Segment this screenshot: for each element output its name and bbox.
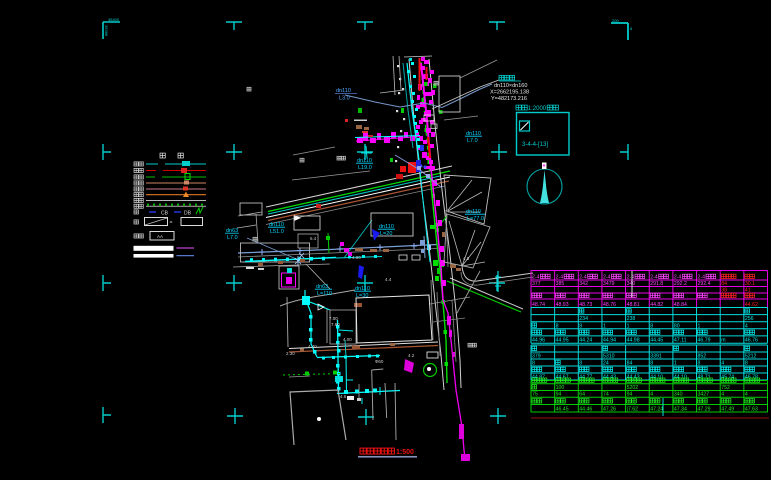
- svg-text:X=2662195.138: X=2662195.138: [490, 90, 529, 96]
- svg-text:L19.0: L19.0: [358, 165, 372, 171]
- svg-text:4.4: 4.4: [385, 277, 392, 282]
- svg-text:8: 8: [579, 361, 582, 367]
- svg-text:47.34: 47.34: [674, 407, 687, 413]
- svg-text:8: 8: [532, 361, 535, 367]
- svg-text:8: 8: [556, 323, 559, 329]
- svg-text:47.26: 47.26: [603, 407, 616, 413]
- svg-text:4.00: 4.00: [343, 337, 352, 342]
- svg-text:238: 238: [627, 316, 636, 322]
- svg-text:47.29: 47.29: [698, 407, 711, 413]
- svg-text:5310: 5310: [603, 354, 615, 360]
- svg-text:3479: 3479: [603, 281, 615, 287]
- svg-text:30.1: 30.1: [745, 281, 755, 287]
- svg-text:DB: DB: [184, 211, 192, 217]
- svg-text:1: 1: [674, 361, 677, 367]
- svg-text:CB: CB: [161, 211, 169, 217]
- svg-text:4.2: 4.2: [408, 353, 415, 358]
- svg-text:80: 80: [674, 323, 680, 329]
- svg-text:L=77.0: L=77.0: [467, 216, 484, 222]
- svg-text:24: 24: [603, 361, 609, 367]
- svg-text:AA: AA: [157, 234, 163, 239]
- svg-text:L3.0: L3.0: [339, 96, 350, 102]
- svg-text:2.30: 2.30: [286, 351, 295, 356]
- svg-text:dn110×dn160: dn110×dn160: [494, 83, 527, 89]
- svg-text:2-4: 2-4: [650, 275, 658, 281]
- svg-text:4: 4: [721, 392, 724, 398]
- svg-text:44.45: 44.45: [650, 338, 663, 344]
- svg-text:4.40: 4.40: [308, 344, 317, 349]
- svg-text:4: 4: [745, 323, 748, 329]
- svg-text:291.8: 291.8: [650, 281, 663, 287]
- svg-text:4: 4: [721, 361, 724, 367]
- svg-text:4.6: 4.6: [340, 394, 347, 399]
- svg-text:1: 1: [698, 323, 701, 329]
- svg-text:8: 8: [650, 361, 653, 367]
- svg-text:2-4: 2-4: [603, 275, 611, 281]
- svg-text:3-4-4-[13]: 3-4-4-[13]: [522, 142, 548, 148]
- svg-text:3427: 3427: [698, 392, 710, 398]
- svg-text:7.60: 7.60: [331, 322, 340, 327]
- svg-text:200: 200: [612, 18, 619, 23]
- svg-text:38: 38: [721, 288, 727, 294]
- svg-text:4.60: 4.60: [352, 255, 361, 260]
- svg-text:L=30: L=30: [356, 293, 368, 299]
- svg-text:340: 340: [674, 392, 683, 398]
- svg-text:2-4: 2-4: [698, 275, 706, 281]
- svg-text:75: 75: [532, 392, 538, 398]
- svg-text:L7.0: L7.0: [227, 235, 238, 241]
- svg-text:35368: 35368: [104, 25, 109, 37]
- svg-text:m: m: [721, 338, 725, 344]
- svg-text:47.49: 47.49: [721, 407, 734, 413]
- svg-text:377: 377: [532, 281, 541, 287]
- svg-text:47.24: 47.24: [650, 407, 663, 413]
- svg-text:379: 379: [532, 354, 541, 360]
- svg-text:L7.0: L7.0: [467, 138, 478, 144]
- svg-text:8: 8: [698, 361, 701, 367]
- svg-text:6.4: 6.4: [310, 236, 317, 241]
- svg-text:46.79: 46.79: [698, 338, 711, 344]
- svg-text:1: 1: [603, 323, 606, 329]
- svg-text:L=110: L=110: [317, 291, 332, 297]
- svg-text:292.2: 292.2: [674, 281, 687, 287]
- svg-text:8: 8: [650, 323, 653, 329]
- svg-text:3391: 3391: [650, 354, 662, 360]
- svg-text:752: 752: [721, 385, 730, 391]
- svg-text:2-4: 2-4: [556, 275, 564, 281]
- svg-text:94: 94: [627, 392, 633, 398]
- svg-text:64: 64: [579, 392, 585, 398]
- svg-text:Ф60: Ф60: [375, 359, 384, 364]
- svg-text:100: 100: [556, 385, 565, 391]
- svg-text:44.96: 44.96: [532, 338, 545, 344]
- svg-text:1:500: 1:500: [396, 449, 414, 456]
- svg-text:=: =: [170, 220, 173, 226]
- svg-text:340: 340: [627, 281, 636, 287]
- svg-text:74: 74: [603, 392, 609, 398]
- svg-text:84: 84: [721, 281, 727, 287]
- svg-text:38400: 38400: [108, 17, 120, 22]
- svg-text:8: 8: [579, 323, 582, 329]
- svg-text:2-4: 2-4: [579, 275, 587, 281]
- svg-text:Y=482173.216: Y=482173.216: [491, 96, 527, 102]
- svg-text:2-4: 2-4: [532, 275, 540, 281]
- svg-text:342: 342: [579, 281, 588, 287]
- svg-text:47.63: 47.63: [745, 407, 758, 413]
- svg-text:7.00: 7.00: [329, 316, 338, 321]
- svg-text:8: 8: [745, 361, 748, 367]
- svg-text:2-4: 2-4: [627, 275, 635, 281]
- svg-text:84: 84: [627, 361, 633, 367]
- svg-text:44.94: 44.94: [603, 338, 616, 344]
- svg-text:44.98: 44.98: [627, 338, 640, 344]
- svg-text:L51.0: L51.0: [270, 229, 284, 235]
- svg-text:385: 385: [556, 281, 565, 287]
- svg-text:44.46: 44.46: [579, 407, 592, 413]
- svg-text:5202: 5202: [627, 385, 639, 391]
- svg-text:4.5: 4.5: [463, 256, 470, 261]
- svg-text:5212: 5212: [745, 354, 757, 360]
- svg-text:4: 4: [650, 392, 653, 398]
- svg-text:234: 234: [579, 316, 588, 322]
- svg-text:46.76: 46.76: [745, 338, 758, 344]
- svg-text:44.24: 44.24: [579, 338, 592, 344]
- svg-text:1:2000: 1:2000: [528, 106, 547, 112]
- svg-text:4: 4: [745, 392, 748, 398]
- svg-text:|7.62: |7.62: [627, 407, 639, 413]
- svg-text:44.95: 44.95: [556, 338, 569, 344]
- svg-text:47.11: 47.11: [674, 338, 687, 344]
- svg-text:L=20: L=20: [380, 231, 392, 237]
- svg-text:852: 852: [698, 354, 707, 360]
- svg-text:46.45: 46.45: [556, 407, 569, 413]
- svg-text:256: 256: [745, 316, 754, 322]
- svg-text:41: 41: [745, 288, 751, 294]
- svg-text:1: 1: [627, 323, 630, 329]
- svg-text:2-4: 2-4: [674, 275, 682, 281]
- svg-text:94: 94: [556, 392, 562, 398]
- svg-text:292.4: 292.4: [698, 281, 711, 287]
